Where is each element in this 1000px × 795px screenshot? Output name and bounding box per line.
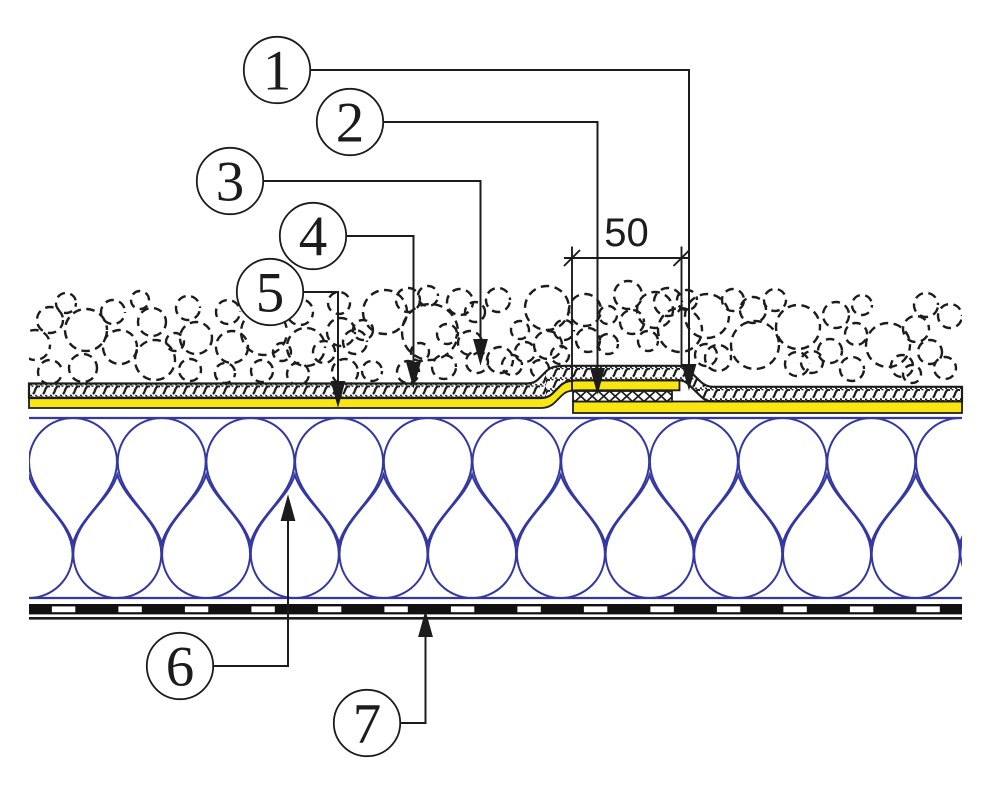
svg-text:6: 6	[166, 636, 195, 699]
svg-text:5: 5	[256, 262, 285, 325]
svg-text:2: 2	[336, 92, 365, 155]
svg-text:7: 7	[353, 693, 382, 756]
svg-text:4: 4	[299, 206, 328, 269]
svg-text:1: 1	[263, 40, 292, 103]
svg-text:3: 3	[216, 151, 245, 214]
svg-text:50: 50	[604, 211, 649, 255]
